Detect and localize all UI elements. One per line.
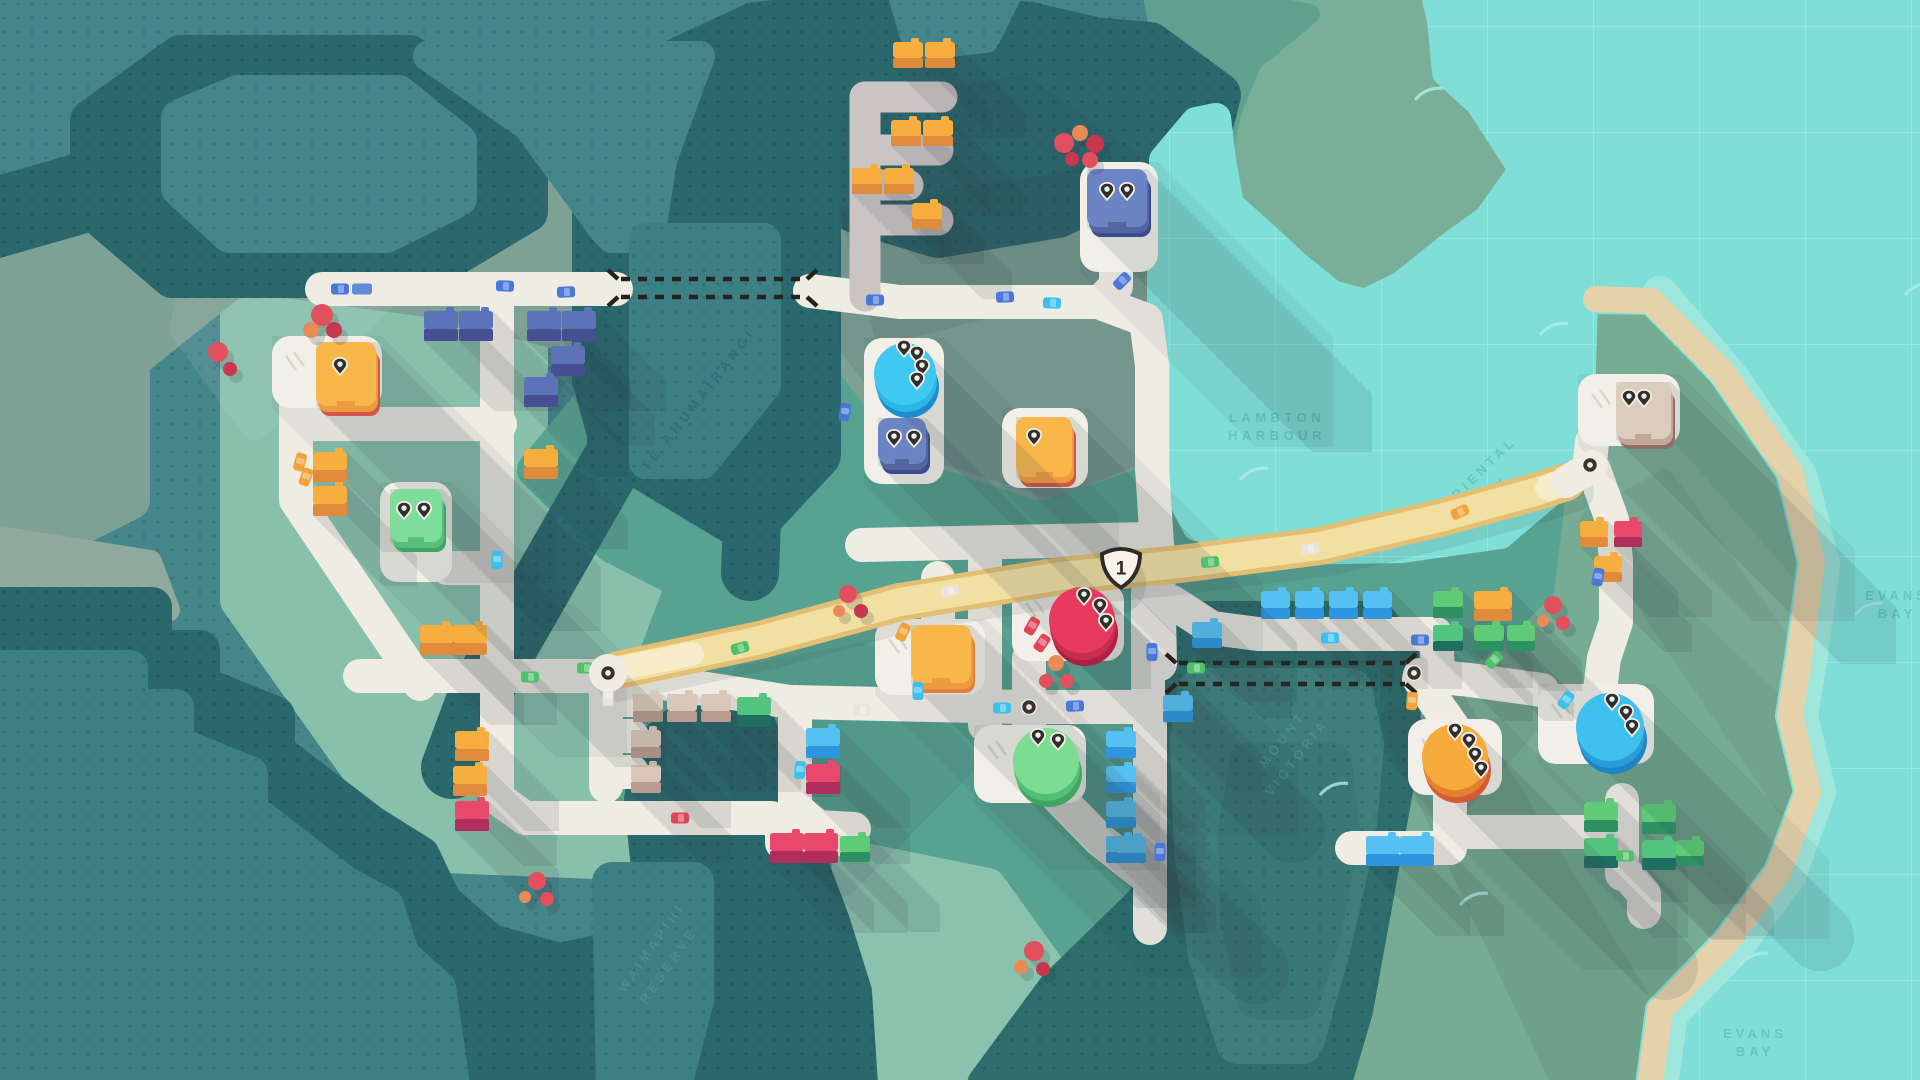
svg-text:1: 1 (1116, 559, 1127, 580)
svg-text:BAY: BAY (1736, 1044, 1774, 1059)
svg-text:EVANS: EVANS (1723, 1026, 1787, 1041)
